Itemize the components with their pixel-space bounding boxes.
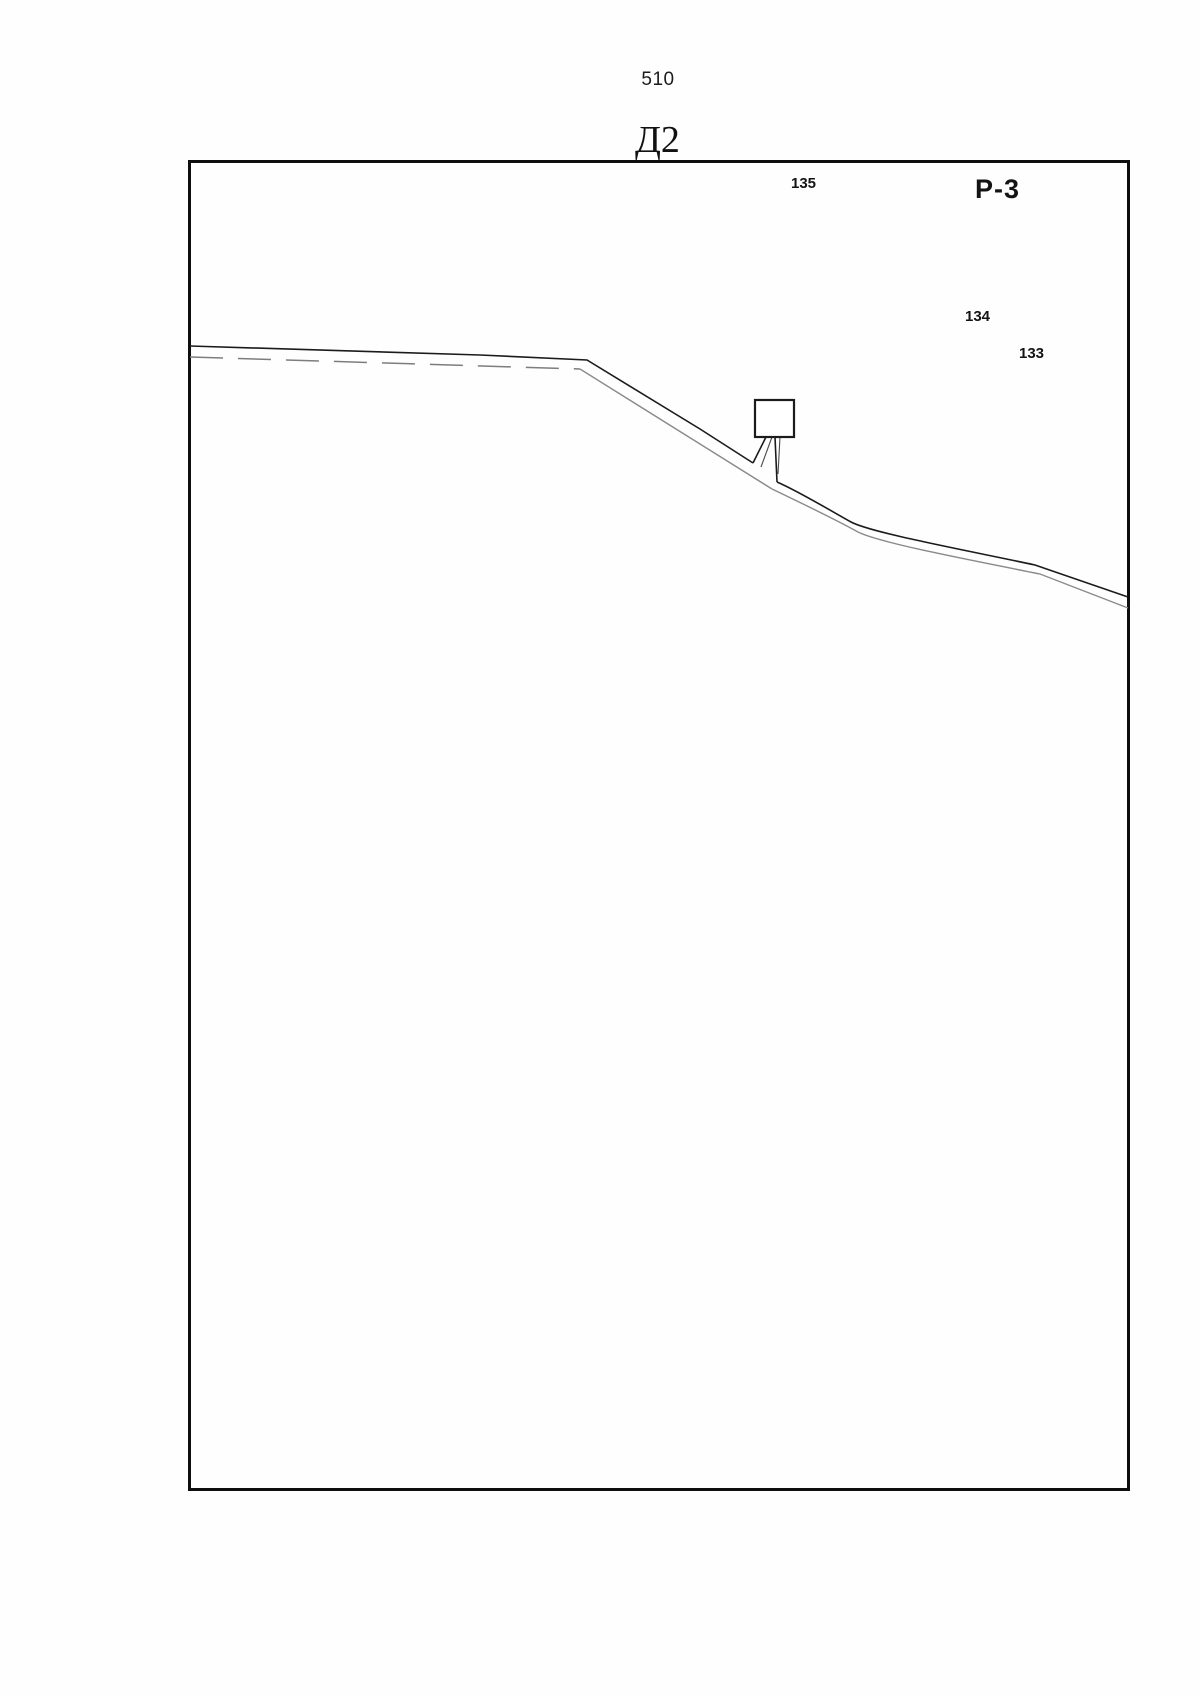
document-page: 510 Д2 135 Р-3 134 133 — [0, 0, 1200, 1697]
plan-drawing — [0, 0, 1200, 1697]
point-label-135: 135 — [791, 176, 816, 191]
road-upper-edge-left — [190, 346, 753, 463]
point-label-133: 133 — [1019, 346, 1044, 361]
structure-box — [755, 400, 794, 437]
point-label-134: 134 — [965, 309, 990, 324]
road-upper-edge-right — [777, 482, 1128, 597]
road-lower-edge-dashed — [190, 357, 580, 369]
road-lower-edge-steep — [580, 369, 772, 489]
region-label-r3: Р-3 — [975, 176, 1020, 203]
structure-stem-right-outer — [778, 437, 780, 474]
structure-stem-left-inner — [761, 437, 772, 467]
structure-stem-right-inner — [775, 437, 777, 482]
